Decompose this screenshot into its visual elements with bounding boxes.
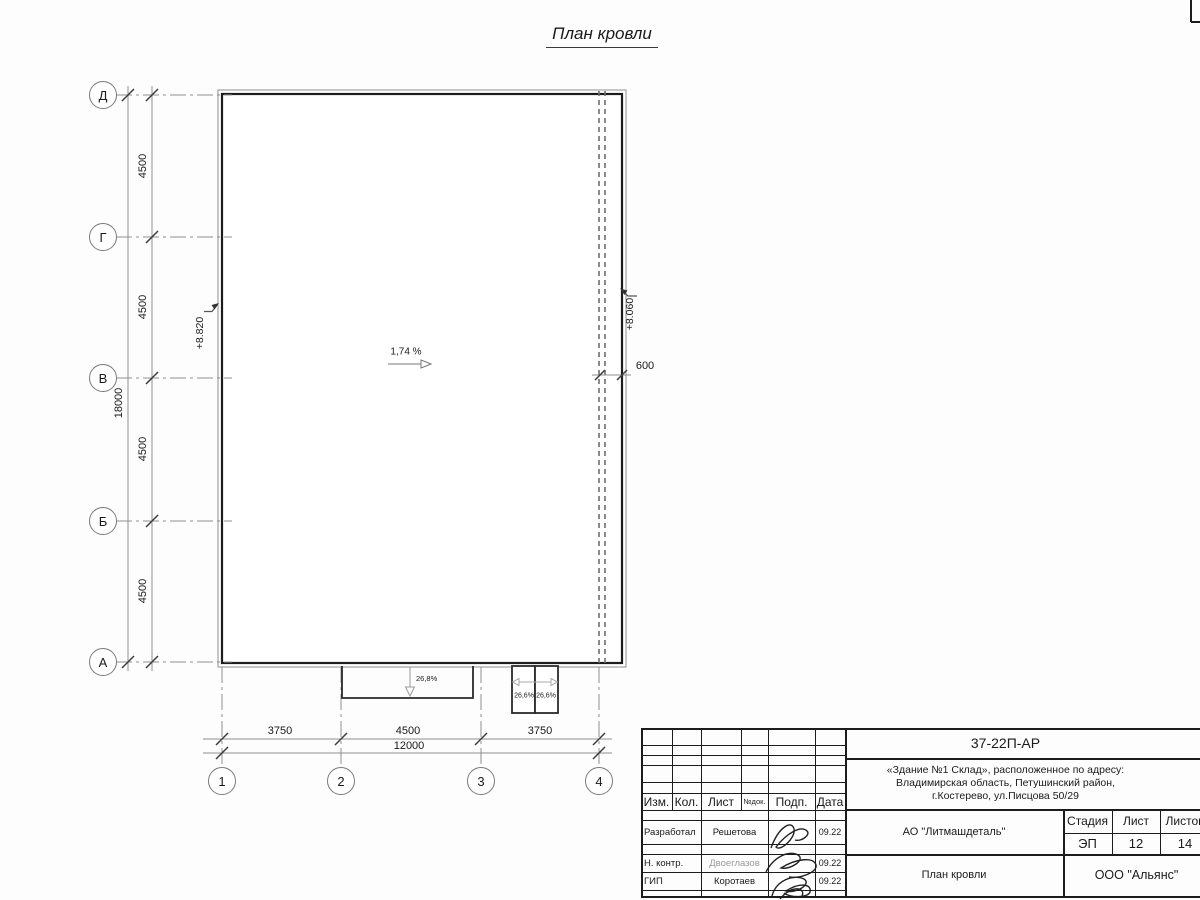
signoff-name-developer: Решетова xyxy=(701,820,768,844)
col-axis-label-1: 1 xyxy=(218,774,225,789)
row-axis-label-v: В xyxy=(99,371,108,386)
ramp-slope-label-left: 26,6% xyxy=(514,693,534,700)
row-axis-bubble-g: Г xyxy=(89,223,117,251)
dim-col-total: 12000 xyxy=(394,740,425,752)
document-number: 37-22П-АР xyxy=(845,728,1200,758)
signature-checkers xyxy=(766,853,816,899)
col-axis-bubble-4: 4 xyxy=(585,767,613,795)
col-axis-label-2: 2 xyxy=(337,774,344,789)
stage-value: ЭП xyxy=(1063,833,1112,854)
contractor-name: ООО "Альянс" xyxy=(1063,854,1200,896)
project-line-3: г.Костерево, ул.Писцова 50/29 xyxy=(887,790,1124,803)
row-axis-lines xyxy=(116,95,232,662)
elevation-leader-left xyxy=(204,303,219,312)
signoff-role-gip: ГИП xyxy=(644,872,699,890)
row-axis-label-g: Г xyxy=(99,230,106,245)
signoff-date-ncontrol: 09.22 xyxy=(815,855,845,871)
dim-row-spacing-2: 4500 xyxy=(137,295,149,319)
signoff-role-ncontrol: Н. контр. xyxy=(644,854,699,872)
rev-header-podp: Подп. xyxy=(768,793,815,810)
rev-header-izm: Изм. xyxy=(641,793,672,810)
row-axis-bubble-d: Д xyxy=(89,81,117,109)
dim-row-spacing-4: 4500 xyxy=(137,579,149,603)
dim-row-total: 18000 xyxy=(113,388,125,419)
rev-header-list: Лист xyxy=(701,793,741,810)
drawing-title: План кровли xyxy=(546,24,658,48)
project-line-2: Владимирская область, Петушинский район, xyxy=(887,777,1124,790)
rev-header-kol: Кол. xyxy=(672,793,701,810)
dim-col-spacing-3: 3750 xyxy=(528,725,552,737)
row-axis-label-b: Б xyxy=(99,514,108,529)
ramp-outlines xyxy=(512,666,558,713)
col-axis-bubble-3: 3 xyxy=(467,767,495,795)
signoff-date-developer: 09.22 xyxy=(815,822,845,842)
row-axis-label-a: А xyxy=(99,655,108,670)
project-line-1: «Здание №1 Склад», расположенное по адре… xyxy=(887,764,1124,777)
client-name: АО "Литмашдеталь" xyxy=(845,809,1063,854)
dim-parapet-offset: 600 xyxy=(636,360,654,372)
dim-col-spacing-2: 4500 xyxy=(396,725,420,737)
col-axis-label-3: 3 xyxy=(477,774,484,789)
row-axis-label-d: Д xyxy=(99,88,108,103)
canopy-slope-label: 26,8% xyxy=(416,674,437,683)
canopy-slope-arrow xyxy=(406,687,415,696)
elevation-mark-right: +8.060 xyxy=(624,298,636,330)
col-axis-bubble-2: 2 xyxy=(327,767,355,795)
elevation-mark-left: +8.820 xyxy=(194,317,206,349)
sheets-header: Листов xyxy=(1160,809,1200,833)
signoff-name-gip: Коротаев xyxy=(701,872,768,890)
rev-header-data: Дата xyxy=(815,793,845,810)
dim-row-spacing-3: 4500 xyxy=(137,437,149,461)
rev-header-ndok: №док. xyxy=(741,793,768,810)
signoff-name-ncontrol: Двоеглазов xyxy=(701,854,768,872)
dim-col-spacing-1: 3750 xyxy=(268,725,292,737)
row-axis-bubble-b: Б xyxy=(89,507,117,535)
stage-header: Стадия xyxy=(1063,809,1112,833)
row-axis-bubble-a: А xyxy=(89,648,117,676)
slope-annotation: 1,74 % xyxy=(390,347,421,358)
sheet-name: План кровли xyxy=(845,854,1063,896)
ramp-slope-label-right: 26,6% xyxy=(536,693,556,700)
sheets-value: 14 xyxy=(1160,833,1200,854)
col-axis-bubble-1: 1 xyxy=(208,767,236,795)
project-description: «Здание №1 Склад», расположенное по адре… xyxy=(845,758,1200,809)
col-axis-label-4: 4 xyxy=(595,774,602,789)
signoff-date-gip: 09.22 xyxy=(815,873,845,889)
dim-row-spacing-1: 4500 xyxy=(137,154,149,178)
canopy-outline xyxy=(342,666,473,698)
building-outline xyxy=(218,90,626,667)
sheet-header: Лист xyxy=(1112,809,1160,833)
signoff-role-developer: Разработал xyxy=(644,820,699,844)
corner-frame-fragment xyxy=(1191,0,1200,22)
sheet-value: 12 xyxy=(1112,833,1160,854)
